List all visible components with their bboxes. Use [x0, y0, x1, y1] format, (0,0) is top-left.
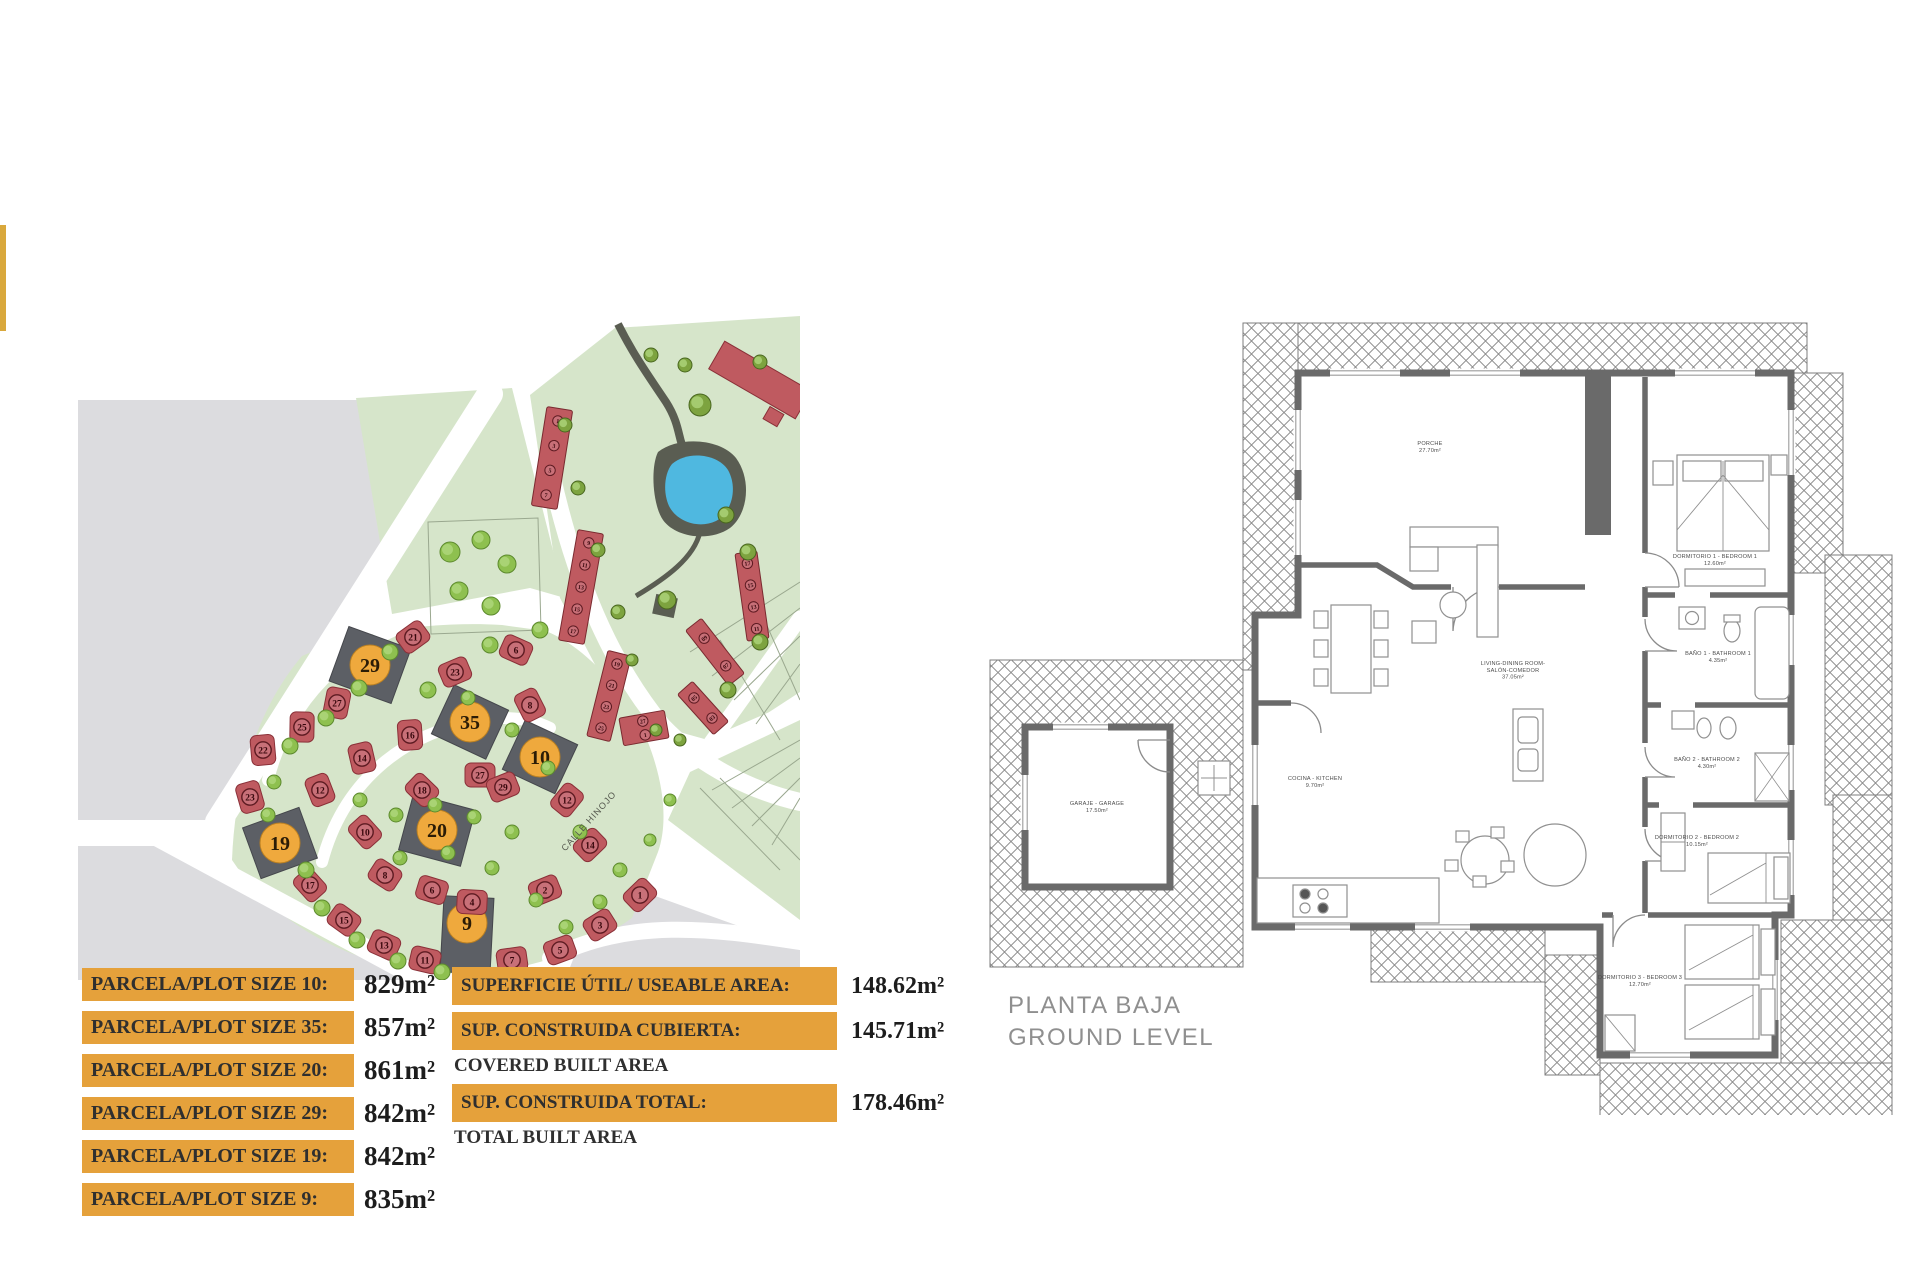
tree-icon [393, 851, 407, 865]
area-label: SUP. CONSTRUIDA TOTAL: [452, 1084, 837, 1122]
tree-icon [541, 761, 555, 775]
svg-text:3: 3 [598, 921, 603, 931]
tree-icon [720, 682, 736, 698]
svg-text:21: 21 [408, 633, 418, 643]
svg-text:11: 11 [754, 627, 760, 634]
tree-icon [441, 846, 455, 860]
tree-icon [298, 862, 314, 878]
tree-icon [267, 775, 281, 789]
area-value: 178.46m² [851, 1090, 944, 1117]
parcel-legend: PARCELA/PLOT SIZE 10:829m²PARCELA/PLOT S… [82, 967, 435, 1225]
area-row: SUP. CONSTRUIDA CUBIERTA:145.71m²COVERED… [452, 1012, 944, 1077]
tree-icon [613, 863, 627, 877]
tree-icon [650, 724, 662, 736]
parcel-row: PARCELA/PLOT SIZE 10:829m² [82, 967, 435, 1001]
svg-text:8: 8 [383, 871, 388, 881]
parcel-label: PARCELA/PLOT SIZE 20: [82, 1054, 354, 1087]
parcel-row: PARCELA/PLOT SIZE 35:857m² [82, 1010, 435, 1044]
svg-text:25: 25 [297, 723, 307, 733]
svg-text:23: 23 [450, 668, 460, 678]
brochure-page: 1357911131517192123251715131109070503271… [0, 0, 1920, 1280]
svg-text:22: 22 [258, 746, 268, 756]
area-label: SUP. CONSTRUIDA CUBIERTA: [452, 1012, 837, 1050]
tree-icon [571, 481, 585, 495]
parcel-label: PARCELA/PLOT SIZE 35: [82, 1011, 354, 1044]
tree-icon [318, 710, 334, 726]
plan-title: PLANTA BAJA GROUND LEVEL [1008, 990, 1214, 1054]
tree-icon [658, 591, 676, 609]
tree-icon [382, 644, 398, 660]
chimney-column [1585, 373, 1611, 535]
tree-icon [591, 543, 605, 557]
tree-icon [678, 358, 692, 372]
svg-text:15: 15 [573, 607, 580, 614]
svg-text:9: 9 [462, 913, 472, 935]
svg-text:12: 12 [562, 796, 572, 806]
svg-text:27: 27 [640, 719, 647, 726]
svg-text:13: 13 [379, 941, 389, 951]
svg-text:18: 18 [417, 786, 427, 796]
tree-icon [644, 348, 658, 362]
parcel-row: PARCELA/PLOT SIZE 29:842m² [82, 1096, 435, 1130]
parcel-value: 842m² [364, 1098, 435, 1129]
parcel-row: PARCELA/PLOT SIZE 19:842m² [82, 1139, 435, 1173]
plan-title-line1: PLANTA BAJA [1008, 990, 1214, 1022]
tree-icon [389, 808, 403, 822]
site-map: 1357911131517192123251715131109070503271… [60, 300, 800, 980]
area-value: 145.71m² [851, 1018, 944, 1045]
svg-text:14: 14 [357, 754, 367, 764]
svg-text:1: 1 [638, 891, 643, 901]
parcel-label: PARCELA/PLOT SIZE 19: [82, 1140, 354, 1173]
svg-text:35: 35 [460, 712, 480, 734]
tree-icon [434, 964, 450, 980]
tree-icon [505, 825, 519, 839]
parcel-value: 829m² [364, 969, 435, 1000]
tree-icon [467, 810, 481, 824]
tree-icon [740, 544, 756, 560]
tree-icon [752, 634, 768, 650]
area-sublabel: COVERED BUILT AREA [454, 1055, 944, 1077]
tree-icon [498, 555, 516, 573]
tree-icon [349, 932, 365, 948]
svg-text:20: 20 [427, 820, 447, 842]
parcel-label: PARCELA/PLOT SIZE 10: [82, 968, 354, 1001]
tree-icon [644, 834, 656, 846]
svg-text:5: 5 [558, 946, 563, 956]
tree-icon [611, 605, 625, 619]
tree-icon [559, 920, 573, 934]
house-marker: 22 [250, 734, 277, 766]
area-row: SUPERFICIE ÚTIL/ USEABLE AREA:148.62m² [452, 967, 944, 1005]
tree-icon [482, 597, 500, 615]
tree-icon [461, 691, 475, 705]
svg-text:13: 13 [750, 605, 757, 612]
svg-text:2: 2 [543, 886, 548, 896]
tree-icon [353, 793, 367, 807]
tree-icon [718, 507, 734, 523]
svg-text:17: 17 [744, 561, 751, 568]
svg-text:29: 29 [498, 783, 508, 793]
svg-text:15: 15 [339, 916, 349, 926]
svg-text:4: 4 [470, 898, 475, 908]
tree-icon [664, 794, 676, 806]
tree-icon [428, 798, 442, 812]
svg-text:11: 11 [421, 956, 430, 966]
parcel-value: 842m² [364, 1141, 435, 1172]
parcel-label: PARCELA/PLOT SIZE 9: [82, 1183, 354, 1216]
svg-text:10: 10 [360, 828, 370, 838]
tree-icon [593, 895, 607, 909]
parcel-row: PARCELA/PLOT SIZE 9:835m² [82, 1182, 435, 1216]
tree-icon [282, 738, 298, 754]
tree-icon [420, 682, 436, 698]
parcel-label: PARCELA/PLOT SIZE 29: [82, 1097, 354, 1130]
svg-text:11: 11 [581, 563, 588, 570]
parcel-row: PARCELA/PLOT SIZE 20:861m² [82, 1053, 435, 1087]
svg-text:13: 13 [577, 585, 584, 592]
tree-icon [558, 418, 572, 432]
tree-icon [261, 808, 275, 822]
area-sublabel: TOTAL BUILT AREA [454, 1127, 944, 1149]
svg-text:6: 6 [514, 646, 519, 656]
tree-icon [626, 654, 638, 666]
area-row: SUP. CONSTRUIDA TOTAL:178.46m²TOTAL BUIL… [452, 1084, 944, 1149]
tree-icon [532, 622, 548, 638]
tree-icon [529, 893, 543, 907]
svg-text:17: 17 [570, 629, 577, 636]
house-marker: 16 [397, 719, 423, 751]
svg-text:17: 17 [305, 881, 315, 891]
tree-icon [482, 637, 498, 653]
area-value: 148.62m² [851, 973, 944, 1000]
svg-text:19: 19 [270, 833, 290, 855]
house-marker: 4 [456, 889, 487, 915]
parcel-value: 861m² [364, 1055, 435, 1086]
area-label: SUPERFICIE ÚTIL/ USEABLE AREA: [452, 967, 837, 1005]
area-legend: SUPERFICIE ÚTIL/ USEABLE AREA:148.62m²SU… [452, 967, 944, 1156]
parcel-value: 857m² [364, 1012, 435, 1043]
tree-icon [485, 861, 499, 875]
svg-text:6: 6 [430, 886, 435, 896]
svg-text:16: 16 [405, 731, 415, 741]
tree-icon [314, 900, 330, 916]
svg-text:15: 15 [747, 583, 754, 590]
room-label: PORCHE27.70m² [1417, 441, 1442, 454]
tree-icon [753, 355, 767, 369]
svg-text:29: 29 [360, 655, 380, 677]
svg-text:8: 8 [528, 701, 533, 711]
tree-icon [440, 542, 460, 562]
tree-icon [351, 680, 367, 696]
house-marker: 25 [290, 712, 315, 742]
tree-icon [505, 723, 519, 737]
svg-text:27: 27 [332, 699, 342, 709]
parcel-value: 835m² [364, 1184, 435, 1215]
plan-title-line2: GROUND LEVEL [1008, 1022, 1214, 1054]
svg-text:14: 14 [585, 841, 595, 851]
svg-text:27: 27 [475, 771, 485, 781]
tree-icon [674, 734, 686, 746]
tree-icon [450, 582, 468, 600]
svg-text:23: 23 [245, 793, 255, 803]
svg-text:12: 12 [315, 786, 325, 796]
tree-icon [689, 394, 711, 416]
tree-icon [472, 531, 490, 549]
svg-text:7: 7 [510, 956, 515, 966]
left-accent-bar [0, 225, 6, 331]
